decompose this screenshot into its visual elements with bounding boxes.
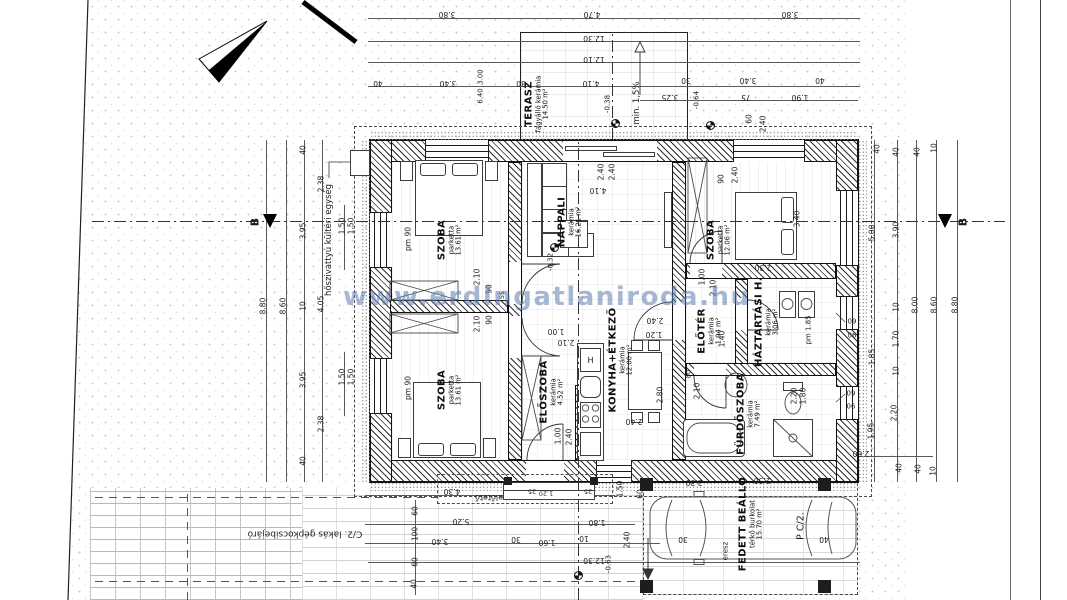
dim-label: 1.20 xyxy=(539,490,553,497)
dim-label: 40 xyxy=(892,147,900,157)
dim-label: 10 xyxy=(299,301,307,311)
dim-label: 8.60 xyxy=(279,298,287,315)
room-label: FÜRDŐSZOBAkerámia7.49 m² xyxy=(735,373,762,455)
dim-label: 2.60 xyxy=(853,449,870,457)
dim-label: 09 xyxy=(848,319,857,326)
dim-label: 25 xyxy=(528,488,536,495)
dim-label: 8.80 xyxy=(259,298,267,315)
dim-label: 2.20 xyxy=(890,405,898,422)
dim-label: 2.30 xyxy=(754,476,771,484)
room-label: SZOBAparketta13.61 m² xyxy=(436,370,463,410)
floor-plan: H xyxy=(0,0,1067,600)
dim-label: 30 xyxy=(681,76,691,84)
dim-label: 1.85 xyxy=(868,349,876,366)
dim-label: 3.25 xyxy=(662,93,679,101)
dim-label: 4.05 xyxy=(317,296,325,313)
dim-label: 2.10 xyxy=(693,383,701,400)
dim-label: 1.50 xyxy=(616,481,624,498)
dim-label: 3.95 xyxy=(299,223,307,240)
dim-label: 3.80 xyxy=(782,10,799,18)
dim-label: 2.40 xyxy=(759,116,767,133)
dim-label: 30 xyxy=(516,79,526,87)
dim-label: 8.60 xyxy=(930,297,938,314)
room-label: FEDETT BEÁLLÓtérkő burkolat15.70 m² xyxy=(737,477,764,571)
dim-label: 2.40 xyxy=(623,532,631,549)
dim-label: 90 xyxy=(717,174,725,184)
dim-label: 12.10 xyxy=(583,55,604,63)
dim-label: 10 xyxy=(892,302,900,312)
dim-label: 2.80 xyxy=(656,387,664,404)
note-label: min. 1,5% xyxy=(633,81,642,124)
dim-label: 1.50 xyxy=(347,218,355,235)
dim-label: 1.90 xyxy=(792,93,809,101)
dim-label: 4.10 xyxy=(583,79,600,87)
dim-label: 90 xyxy=(485,315,493,325)
dim-label: 10 xyxy=(892,366,900,376)
note-label: pm 90 xyxy=(404,376,412,400)
room-area: 3.06 m² xyxy=(773,277,781,367)
dim-label: 8.00 xyxy=(911,297,919,314)
dim-label: 8.80 xyxy=(951,297,959,314)
level-label: -0.38 xyxy=(605,95,612,113)
note-label: B xyxy=(958,218,969,226)
dim-label: 3.80 xyxy=(439,10,456,18)
dim-label: 40 xyxy=(299,145,307,155)
note-label: eresz xyxy=(723,542,730,561)
room-name: NAPPALI xyxy=(556,197,568,247)
level-label: -0.64 xyxy=(694,91,701,109)
room-name: SZOBA xyxy=(436,370,448,410)
room-name: SZOBA xyxy=(705,220,717,260)
dim-label: 1.00 xyxy=(548,327,565,335)
room-label: SZOBAparketta13.61 m² xyxy=(436,220,463,260)
room-label: SZOBAparketta12.06 m² xyxy=(705,220,732,260)
dim-label: 40 xyxy=(895,463,903,473)
note-label: B xyxy=(250,218,261,226)
note-label: C/2. lakás gépkocsibejáró xyxy=(248,529,363,538)
dim-label: 1.50 xyxy=(347,369,355,386)
note-label: pm 1.85 xyxy=(806,315,813,344)
dim-label: 4.70 xyxy=(584,10,601,18)
room-area: 4.52 m² xyxy=(558,360,566,423)
dim-label: 2.10 xyxy=(473,316,481,333)
dim-label: 2.10 xyxy=(709,280,717,297)
dim-label: 10 xyxy=(930,143,938,153)
dim-label: 1.60 xyxy=(539,538,556,546)
dim-label: 6.40 xyxy=(478,88,485,103)
room-label: TERASZfagyálló kerámia14.50 m² xyxy=(523,76,550,133)
dim-label: 2.40 xyxy=(565,429,573,446)
dim-label: 40 xyxy=(913,147,921,157)
dim-label: 4.30 xyxy=(444,487,461,495)
dim-label: 09 xyxy=(847,391,856,398)
room-area: 12.00 m² xyxy=(627,307,635,412)
dim-label: 2.30 xyxy=(686,478,703,486)
dim-label: 2.10 xyxy=(473,269,481,286)
dim-label: 40 xyxy=(914,464,922,474)
room-name: ELŐTÉR xyxy=(696,308,708,353)
dim-label: 2.20 xyxy=(790,388,798,405)
dim-label: 3.40 xyxy=(432,537,449,545)
room-area: 7.49 m² xyxy=(755,373,763,455)
dim-label: 10 xyxy=(929,466,937,476)
room-area: 13.61 m² xyxy=(456,220,464,260)
room-area: 15.70 m² xyxy=(757,477,765,571)
dim-label: 1.50 xyxy=(338,369,346,386)
dim-label: 5.00 xyxy=(868,225,876,242)
dim-label: 80 xyxy=(686,370,693,379)
dim-label: 10 xyxy=(579,534,589,542)
dim-label: 40 xyxy=(873,144,881,154)
dim-label: 30 xyxy=(511,535,521,543)
dim-label: 25 xyxy=(584,488,592,495)
dim-label: 12.30 xyxy=(583,556,604,564)
level-label: -0.63 xyxy=(606,555,613,573)
dim-label: 06 xyxy=(847,404,856,411)
dim-label: 3.90 xyxy=(892,222,900,239)
dim-label: 1.00 xyxy=(698,269,706,286)
dim-label: 40 xyxy=(373,79,383,87)
dim-label: 2.40 xyxy=(626,417,643,425)
room-name: FEDETT BEÁLLÓ xyxy=(737,477,749,571)
dim-label: 3.40 xyxy=(793,211,801,228)
annotations: TERASZfagyálló kerámia14.50 m²NAPPALIker… xyxy=(0,0,1067,600)
dim-label: 55 xyxy=(499,291,506,299)
room-name: SZOBA xyxy=(436,220,448,260)
dim-label: 2.40 xyxy=(731,167,739,184)
dim-label: 4.10 xyxy=(590,186,607,194)
room-area: 12.06 m² xyxy=(725,220,733,260)
room-name: HÁZTARTÁSI H. xyxy=(753,277,765,367)
room-label: HÁZTARTÁSI H.kerámia3.06 m² xyxy=(753,277,780,367)
dim-label: 40 xyxy=(299,456,307,466)
dim-label: 2.40 xyxy=(608,164,616,181)
room-area: 16.21 m² xyxy=(576,197,584,247)
dim-label: 3.40 xyxy=(740,76,757,84)
dim-label: 1.70 xyxy=(892,331,900,348)
dim-label: 1.40 xyxy=(718,331,726,348)
dim-label: 1.50 xyxy=(338,218,346,235)
level-label: -0.32 xyxy=(548,253,555,271)
dim-label: 12.30 xyxy=(583,34,604,42)
room-name: ELŐSZOBA xyxy=(538,360,550,423)
room-name: KONYHA+ÉTKEZŐ xyxy=(607,307,619,412)
dim-label: 1.00 xyxy=(554,428,562,445)
note-label: P C/2. xyxy=(796,512,806,540)
room-label: ELŐSZOBAkerámia4.52 m² xyxy=(538,360,565,423)
note-label: előtető xyxy=(475,493,503,501)
dim-label: 5.20 xyxy=(453,517,470,525)
room-area: 14.50 m² xyxy=(543,76,551,133)
dim-label: 40 xyxy=(815,76,825,84)
dim-label: 3.40 xyxy=(440,79,457,87)
dim-label: 75 xyxy=(741,93,751,101)
dim-label: 60 xyxy=(411,506,419,516)
dim-label: 1.80 xyxy=(589,518,606,526)
dim-label: 1.20 xyxy=(646,330,663,338)
note-label: pm 90 xyxy=(404,227,412,251)
dim-label: 06 xyxy=(848,333,857,340)
dim-label: 3.95 xyxy=(299,372,307,389)
room-area: 13.61 m² xyxy=(456,370,464,410)
dim-label: 3.00 xyxy=(478,69,485,84)
dim-label: 2.10 xyxy=(558,338,575,346)
dim-label: 40 xyxy=(819,535,829,543)
room-label: NAPPALIkerámia16.21 m² xyxy=(556,197,583,247)
dim-label: 40 xyxy=(410,579,418,589)
dim-label: 90 xyxy=(485,284,493,294)
dim-label: 100 xyxy=(411,527,419,541)
dim-label: 60 xyxy=(411,557,419,567)
room-name: FÜRDŐSZOBA xyxy=(735,373,747,455)
room-label: KONYHA+ÉTKEZŐkerámia12.00 m² xyxy=(607,307,634,412)
dim-label: 2.40 xyxy=(647,316,664,324)
dim-label: 60 xyxy=(745,114,753,124)
dim-label: 60 xyxy=(636,489,644,499)
dim-label: 1.80 xyxy=(799,388,807,405)
dim-label: 30 xyxy=(678,535,688,543)
dim-label: 2.40 xyxy=(597,164,605,181)
dim-label: 2.30 xyxy=(755,263,772,271)
dim-label: 2.38 xyxy=(317,416,325,433)
dim-label: 1.95 xyxy=(867,423,875,440)
note-label: hőszivattyú kültéri egység xyxy=(325,184,334,296)
